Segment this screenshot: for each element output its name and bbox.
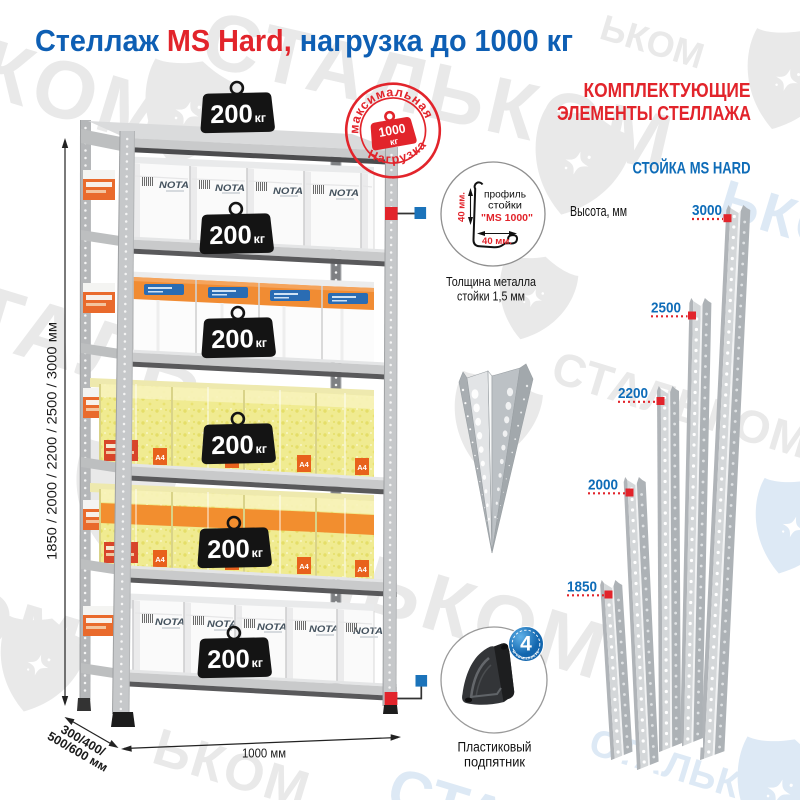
svg-text:ЭЛЕМЕНТЫ СТЕЛЛАЖА: ЭЛЕМЕНТЫ СТЕЛЛАЖА [557,102,751,125]
svg-text:подпятник: подпятник [464,755,526,771]
svg-text:A4: A4 [299,460,309,469]
svg-text:стойки 1,5 мм: стойки 1,5 мм [457,289,525,304]
svg-text:СТОЙКА MS HARD: СТОЙКА MS HARD [633,159,751,178]
svg-text:"MS 1000": "MS 1000" [481,212,533,224]
svg-text:1850 / 2000 / 2200 / 2500 / 30: 1850 / 2000 / 2200 / 2500 / 3000 мм [44,322,60,560]
svg-text:NOTA: NOTA [155,617,185,627]
svg-text:A4: A4 [155,555,165,564]
svg-text:A4: A4 [299,562,309,571]
svg-text:Пластиковый: Пластиковый [458,740,532,756]
svg-text:NOTA: NOTA [273,186,303,196]
svg-text:NOTA: NOTA [329,188,359,198]
svg-text:A4: A4 [155,453,165,462]
svg-text:1000 мм: 1000 мм [242,746,286,761]
svg-text:1850: 1850 [567,580,597,596]
svg-text:Высота, мм: Высота, мм [570,204,627,220]
svg-text:NOTA: NOTA [159,180,189,190]
svg-text:2500: 2500 [651,301,681,317]
svg-text:профиль: профиль [484,189,526,201]
svg-text:40 мм.: 40 мм. [457,192,468,222]
svg-text:Толщина металла: Толщина металла [446,274,537,289]
svg-text:NOTA: NOTA [309,624,339,634]
svg-text:4: 4 [520,633,532,656]
svg-text:A4: A4 [357,463,367,472]
svg-text:3000: 3000 [692,203,722,219]
svg-text:КОМПЛЕКТУЮЩИЕ: КОМПЛЕКТУЮЩИЕ [584,79,751,102]
svg-text:NOTA: NOTA [353,626,383,636]
svg-text:стойки: стойки [488,201,522,212]
svg-text:A4: A4 [357,565,367,574]
svg-text:NOTA: NOTA [257,622,287,632]
svg-text:2000: 2000 [588,478,618,494]
svg-text:NOTA: NOTA [215,183,245,193]
svg-text:2200: 2200 [618,386,648,402]
svg-text:Стеллаж MS Hard, нагрузка до 1: Стеллаж MS Hard, нагрузка до 1000 кг [35,24,573,58]
svg-text:40 мм.: 40 мм. [482,236,512,247]
